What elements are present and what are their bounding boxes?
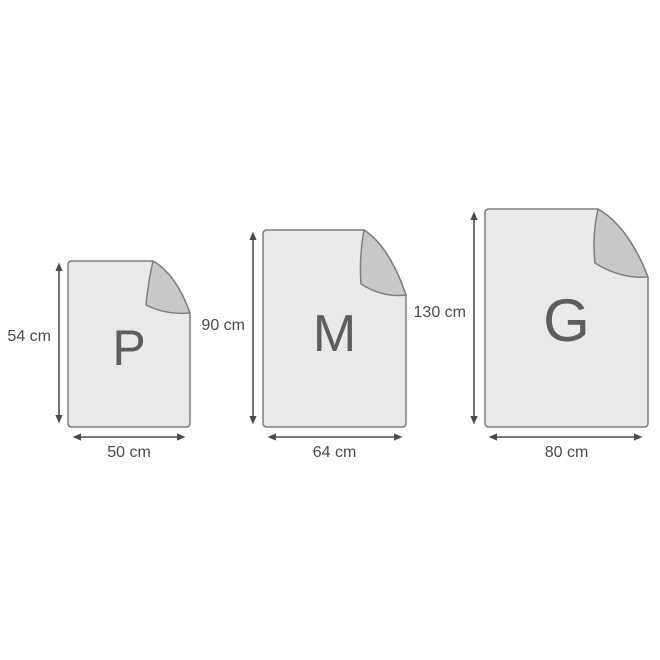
width-arrow-m <box>267 431 403 443</box>
width-label-p: 50 cm <box>68 444 190 462</box>
height-arrow-g <box>468 211 480 425</box>
width-arrow-p <box>72 431 186 443</box>
size-letter-m: M <box>263 235 406 432</box>
height-arrow-p <box>53 262 65 424</box>
width-label-g: 80 cm <box>485 444 648 462</box>
height-label-p: 54 cm <box>1 328 51 346</box>
size-comparison-diagram: P 54 cm 50 cm M 90 cm <box>0 0 660 660</box>
size-letter-p: P <box>68 265 190 431</box>
height-label-m: 90 cm <box>155 317 245 335</box>
height-arrow-m <box>247 231 259 425</box>
height-label-g: 130 cm <box>376 304 466 322</box>
width-label-m: 64 cm <box>263 444 406 462</box>
width-arrow-g <box>488 431 643 443</box>
size-letter-g: G <box>485 211 648 429</box>
